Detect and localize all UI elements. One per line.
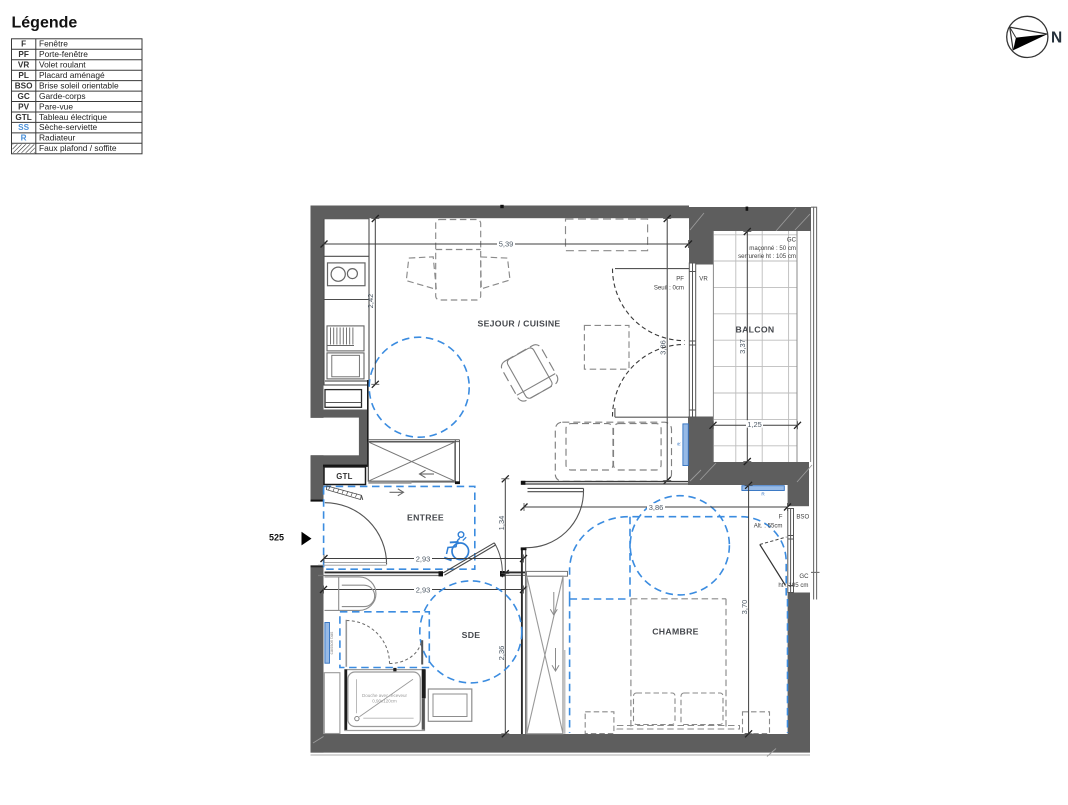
svg-text:1,34: 1,34	[497, 516, 506, 531]
svg-text:SDE: SDE	[462, 630, 481, 640]
svg-text:GC: GC	[787, 237, 797, 244]
svg-text:Volet roulant: Volet roulant	[39, 60, 86, 70]
svg-text:PL: PL	[18, 71, 28, 80]
svg-text:GTL: GTL	[336, 472, 353, 481]
svg-text:2,93: 2,93	[416, 554, 431, 563]
svg-text:Sèche-serviette: Sèche-serviette	[39, 122, 98, 132]
svg-text:PF: PF	[18, 50, 28, 59]
svg-text:GC: GC	[17, 92, 29, 101]
svg-text:Tableau électrique: Tableau électrique	[39, 112, 107, 122]
svg-text:F: F	[779, 514, 783, 521]
svg-text:2,42: 2,42	[366, 294, 375, 309]
svg-text:R: R	[677, 442, 682, 446]
svg-text:N: N	[1051, 30, 1062, 47]
svg-text:Alt. : 55cm: Alt. : 55cm	[754, 523, 783, 530]
svg-text:caisson bas: caisson bas	[329, 632, 334, 655]
svg-text:CHAMBRE: CHAMBRE	[652, 627, 699, 637]
svg-text:Porte-fenêtre: Porte-fenêtre	[39, 49, 88, 59]
svg-text:GTL: GTL	[15, 113, 31, 122]
svg-text:Fenêtre: Fenêtre	[39, 39, 68, 49]
svg-text:BSO: BSO	[15, 81, 33, 90]
svg-text:GC: GC	[799, 573, 809, 580]
svg-text:Faux plafond / soffite: Faux plafond / soffite	[39, 143, 117, 153]
svg-text:R: R	[21, 134, 27, 143]
svg-text:Garde-corps: Garde-corps	[39, 91, 86, 101]
svg-text:PF: PF	[676, 275, 684, 282]
svg-text:maçonné : 50 cm: maçonné : 50 cm	[749, 245, 796, 252]
svg-text:Radiateur: Radiateur	[39, 133, 76, 143]
svg-text:R: R	[761, 492, 765, 497]
svg-text:2,36: 2,36	[497, 646, 506, 661]
svg-text:VR: VR	[18, 61, 29, 70]
svg-text:0,90x120cm: 0,90x120cm	[372, 698, 397, 703]
svg-text:525: 525	[269, 533, 284, 543]
svg-text:2,93: 2,93	[416, 585, 431, 594]
svg-text:SS: SS	[18, 123, 29, 132]
svg-text:Brise soleil orientable: Brise soleil orientable	[39, 80, 119, 90]
svg-text:Douche avec receveur: Douche avec receveur	[362, 693, 408, 698]
svg-text:ht : 105 cm: ht : 105 cm	[778, 582, 808, 589]
svg-text:5,39: 5,39	[499, 240, 514, 249]
svg-text:Pare-vue: Pare-vue	[39, 101, 73, 111]
svg-text:BSO: BSO	[796, 514, 809, 521]
svg-text:ENTREE: ENTREE	[407, 512, 444, 522]
svg-text:3,70: 3,70	[740, 600, 749, 615]
svg-text:serrurerie ht : 105 cm: serrurerie ht : 105 cm	[738, 253, 796, 260]
svg-text:Seuil : 0cm: Seuil : 0cm	[654, 284, 684, 291]
svg-text:Légende: Légende	[12, 15, 78, 32]
svg-text:3,37: 3,37	[738, 339, 747, 354]
svg-text:Placard aménagé: Placard aménagé	[39, 70, 105, 80]
svg-text:3,86: 3,86	[649, 503, 664, 512]
svg-text:VR: VR	[699, 275, 708, 282]
svg-text:1,25: 1,25	[747, 420, 762, 429]
svg-text:SEJOUR / CUISINE: SEJOUR / CUISINE	[477, 318, 560, 328]
svg-text:BALCON: BALCON	[736, 324, 775, 334]
svg-text:PV: PV	[18, 102, 29, 111]
svg-text:F: F	[21, 40, 26, 49]
